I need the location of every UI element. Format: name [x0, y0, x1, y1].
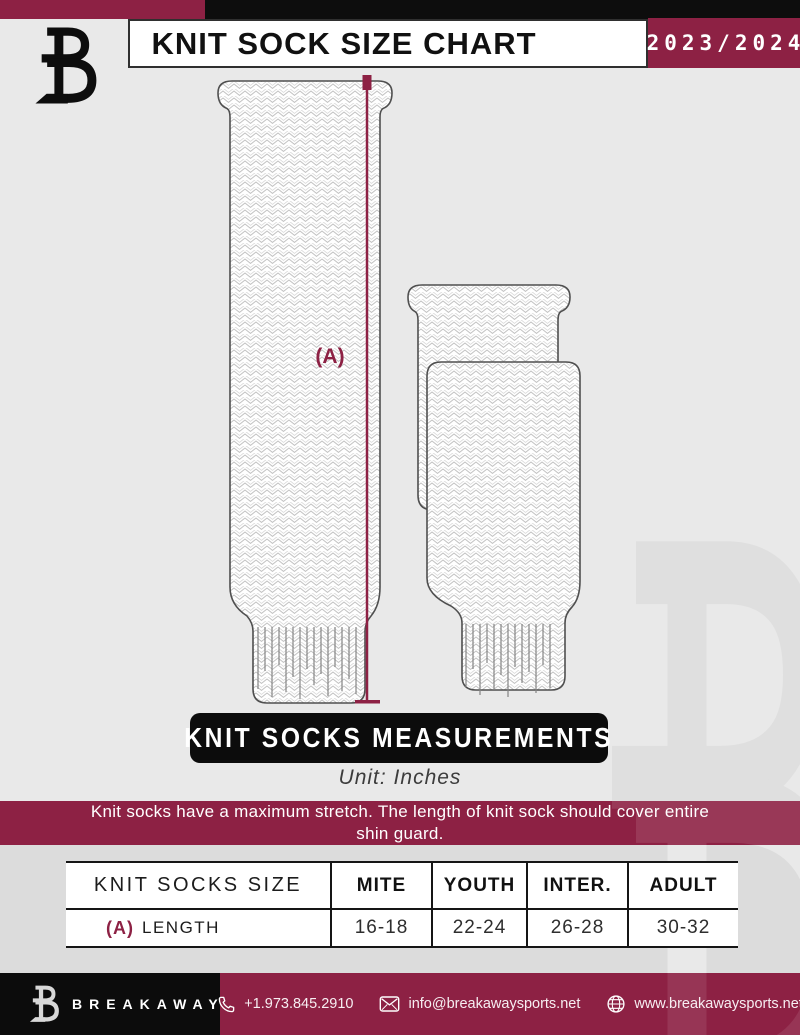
length-value-adult: 30-32 — [627, 908, 738, 948]
length-value-mite: 16-18 — [330, 908, 431, 948]
table-header-inter: INTER. — [526, 861, 627, 908]
website-contact: www.breakawaysports.net — [606, 994, 800, 1014]
globe-icon — [606, 994, 626, 1014]
table-header-size: KNIT SOCKS SIZE — [66, 861, 330, 908]
phone-number: +1.973.845.2910 — [244, 996, 353, 1012]
title-box: KNIT SOCK SIZE CHART — [128, 19, 648, 68]
notice-bar: Knit socks have a maximum stretch. The l… — [0, 801, 800, 845]
footer-contacts: +1.973.845.2910 info@breakawaysports.net… — [220, 973, 800, 1035]
header-black-strip — [205, 0, 800, 19]
email-address: info@breakawaysports.net — [408, 996, 580, 1012]
header-maroon-strip — [0, 0, 205, 19]
table-row-length-label: (A) LENGTH — [66, 908, 330, 948]
front-sock — [427, 362, 580, 697]
season-label: 2023/2024 — [647, 31, 800, 55]
page-title: KNIT SOCK SIZE CHART — [151, 26, 536, 62]
length-row-label: LENGTH — [142, 918, 220, 938]
length-value-youth: 22-24 — [431, 908, 526, 948]
sock-measurement-diagram: (A) — [190, 75, 620, 715]
footer-brand-block: BREAKAWAY — [0, 973, 220, 1035]
unit-note: Unit: Inches — [0, 766, 800, 790]
breakaway-b-footer-icon — [26, 984, 60, 1024]
table-header-youth: YOUTH — [431, 861, 526, 908]
footer: BREAKAWAY +1.973.845.2910 info@breakaway… — [0, 973, 800, 1035]
email-contact: info@breakawaysports.net — [379, 995, 580, 1013]
table-header-mite: MITE — [330, 861, 431, 908]
length-row-prefix: (A) — [106, 918, 134, 939]
phone-contact: +1.973.845.2910 — [217, 995, 353, 1014]
length-value-inter: 26-28 — [526, 908, 627, 948]
email-icon — [379, 995, 400, 1013]
measurements-banner: KNIT SOCKS MEASUREMENTS — [190, 713, 608, 763]
brand-logo — [22, 24, 104, 108]
measurement-label-a: (A) — [315, 345, 344, 368]
measurements-banner-label: KNIT SOCKS MEASUREMENTS — [185, 722, 614, 754]
size-table: KNIT SOCKS SIZE MITE YOUTH INTER. ADULT … — [66, 861, 738, 948]
brand-name: BREAKAWAY — [72, 996, 225, 1012]
breakaway-b-icon — [22, 24, 104, 108]
table-header-adult: ADULT — [627, 861, 738, 908]
website-url: www.breakawaysports.net — [634, 996, 800, 1012]
notice-text: Knit socks have a maximum stretch. The l… — [90, 801, 710, 845]
knit-sock-size-chart-poster: KNIT SOCK SIZE CHART 2023/2024 — [0, 0, 800, 1035]
season-badge: 2023/2024 — [648, 18, 800, 68]
phone-icon — [217, 995, 236, 1014]
